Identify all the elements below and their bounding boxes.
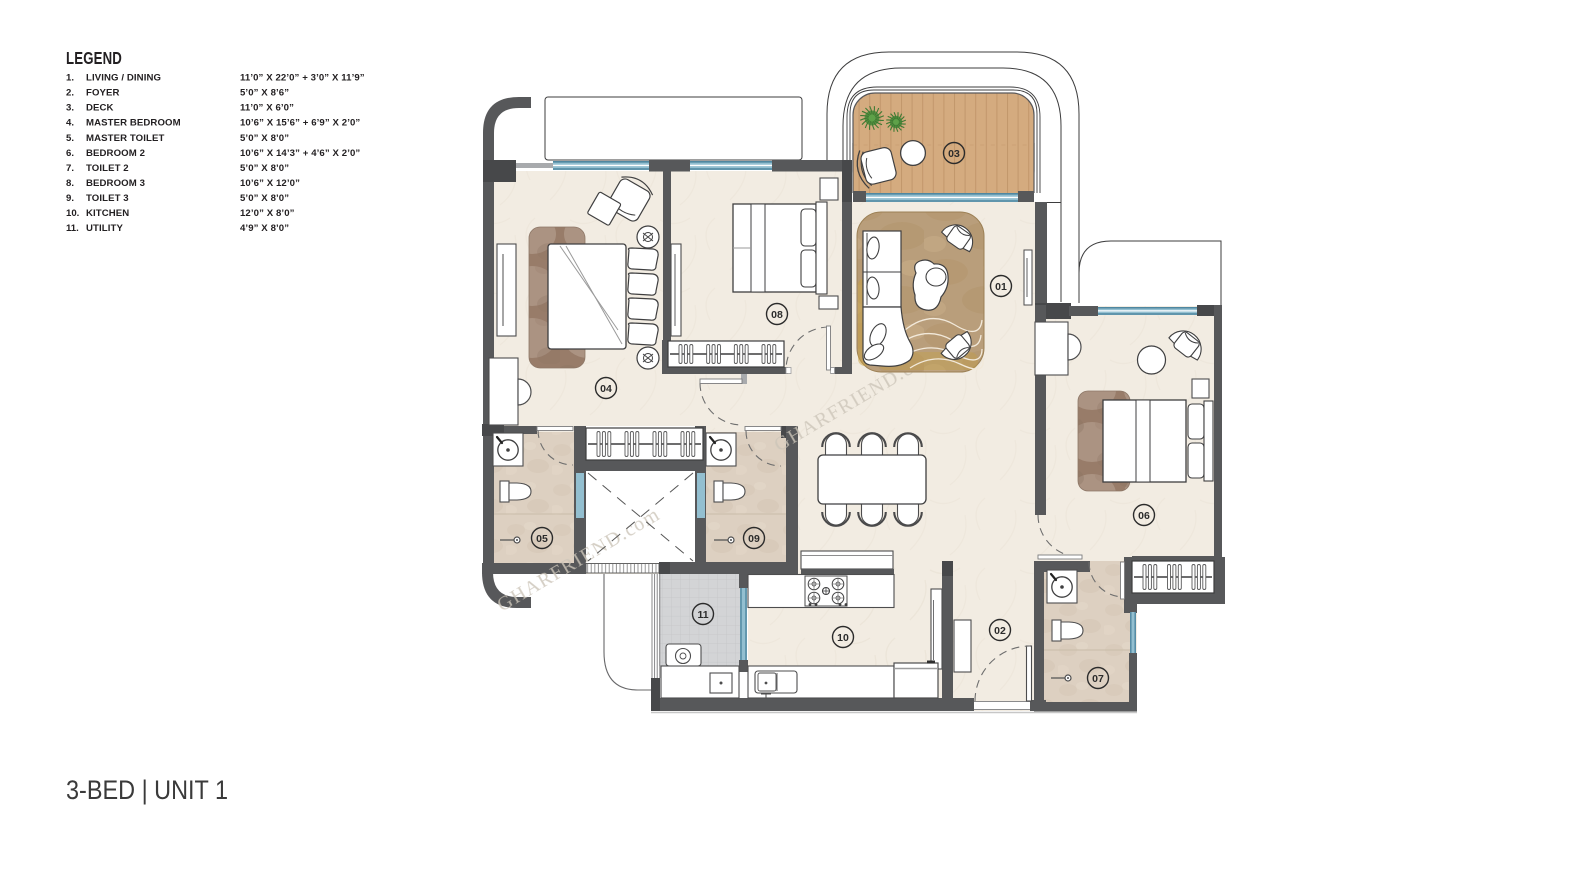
svg-text:TOILET 2: TOILET 2	[86, 163, 129, 174]
svg-text:05: 05	[536, 533, 548, 545]
svg-text:MASTER BEDROOM: MASTER BEDROOM	[86, 118, 181, 129]
svg-text:09: 09	[748, 533, 760, 545]
svg-text:4.: 4.	[66, 118, 74, 129]
svg-text:04: 04	[600, 383, 612, 395]
svg-text:11’0” X 6’0”: 11’0” X 6’0”	[240, 103, 294, 114]
svg-text:2.: 2.	[66, 88, 74, 99]
svg-text:10: 10	[837, 632, 849, 644]
svg-text:07: 07	[1092, 673, 1104, 685]
svg-text:MASTER TOILET: MASTER TOILET	[86, 133, 164, 144]
svg-text:10’6” X 15’6” + 6’9” X 2’0”: 10’6” X 15’6” + 6’9” X 2’0”	[240, 118, 360, 129]
svg-text:3-BED | UNIT 1: 3-BED | UNIT 1	[66, 775, 228, 805]
svg-text:5’0” X 8’0”: 5’0” X 8’0”	[240, 193, 289, 204]
svg-text:4’9” X 8’0”: 4’9” X 8’0”	[240, 223, 289, 234]
svg-text:10.: 10.	[66, 208, 79, 219]
svg-text:BEDROOM 3: BEDROOM 3	[86, 178, 145, 189]
svg-text:5.: 5.	[66, 133, 74, 144]
svg-text:5’0” X 8’6”: 5’0” X 8’6”	[240, 88, 289, 99]
svg-text:6.: 6.	[66, 148, 74, 159]
svg-text:5’0” X 8’0”: 5’0” X 8’0”	[240, 163, 289, 174]
svg-text:UTILITY: UTILITY	[86, 223, 123, 234]
svg-text:LIVING / DINING: LIVING / DINING	[86, 73, 161, 84]
svg-text:11’0” X 22’0” + 3’0” X 11’9”: 11’0” X 22’0” + 3’0” X 11’9”	[240, 73, 365, 84]
svg-text:01: 01	[995, 281, 1007, 293]
svg-text:11: 11	[697, 609, 708, 621]
svg-text:9.: 9.	[66, 193, 74, 204]
svg-text:06: 06	[1138, 510, 1150, 522]
svg-text:BEDROOM 2: BEDROOM 2	[86, 148, 145, 159]
svg-text:DECK: DECK	[86, 103, 114, 114]
svg-text:03: 03	[948, 148, 960, 160]
svg-text:08: 08	[771, 309, 783, 321]
svg-text:TOILET 3: TOILET 3	[86, 193, 129, 204]
svg-text:11.: 11.	[66, 223, 79, 234]
svg-text:FOYER: FOYER	[86, 88, 120, 99]
svg-text:3.: 3.	[66, 103, 74, 114]
svg-text:10’6” X 14’3” + 4’6” X 2’0”: 10’6” X 14’3” + 4’6” X 2’0”	[240, 148, 360, 159]
svg-text:LEGEND: LEGEND	[66, 48, 122, 68]
svg-text:1.: 1.	[66, 73, 74, 84]
svg-text:7.: 7.	[66, 163, 74, 174]
svg-text:10’6” X 12’0”: 10’6” X 12’0”	[240, 178, 300, 189]
svg-text:12’0” X 8’0”: 12’0” X 8’0”	[240, 208, 295, 219]
svg-text:8.: 8.	[66, 178, 74, 189]
svg-text:02: 02	[994, 625, 1006, 637]
svg-text:KITCHEN: KITCHEN	[86, 208, 129, 219]
svg-text:5’0” X 8’0”: 5’0” X 8’0”	[240, 133, 289, 144]
